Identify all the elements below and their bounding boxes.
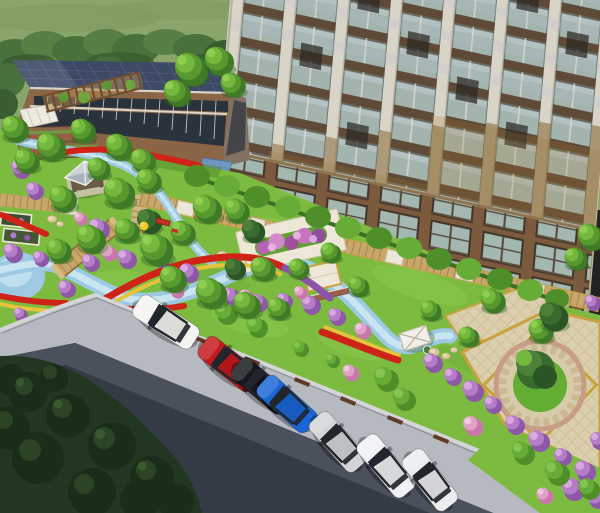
rendered-scene bbox=[0, 0, 600, 513]
